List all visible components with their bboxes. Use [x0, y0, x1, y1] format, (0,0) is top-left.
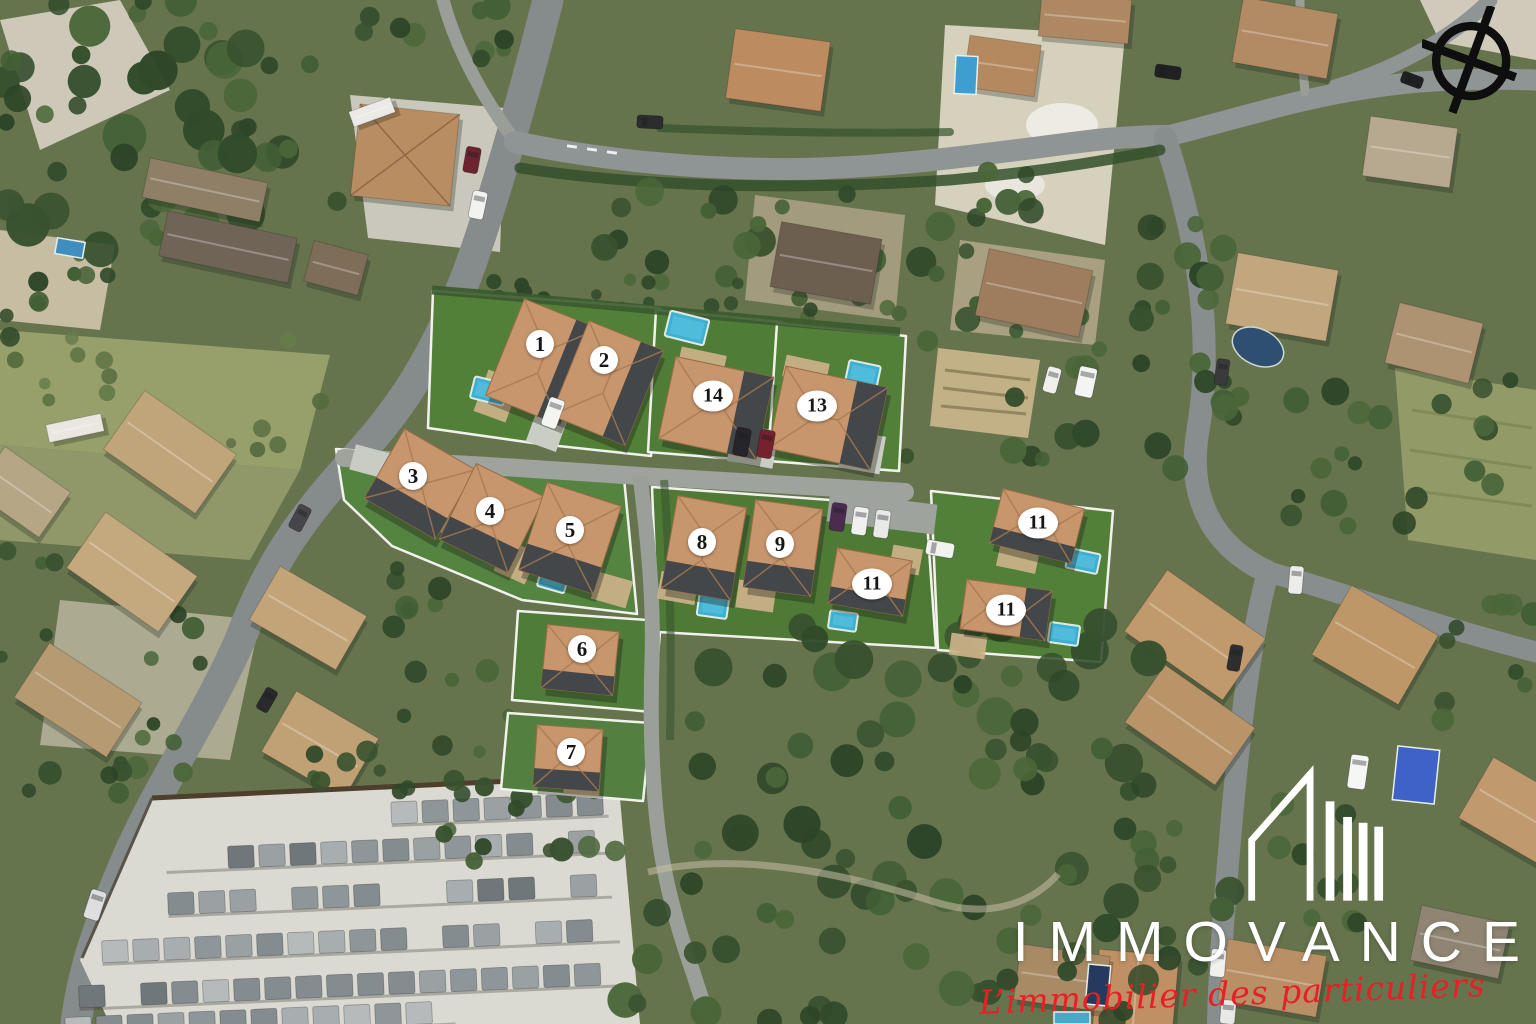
lot-marker-lot-3: 3 [399, 462, 427, 490]
logo-icon-wrap [979, 762, 1386, 908]
lot-marker-lot-9: 9 [766, 530, 794, 558]
brand-logo: IMMOVANCE L’immobilier des particuliers [979, 762, 1526, 1010]
aerial-map: 1214133458911111167 IMMOVANCE L’immobili… [0, 0, 1536, 1024]
lot-marker-lot-1: 1 [526, 330, 554, 358]
lot-marker-lot-7: 7 [557, 738, 585, 766]
lot-marker-lot-14: 14 [693, 381, 733, 412]
lot-marker-lot-13: 13 [797, 391, 837, 422]
lot-marker-lot-11-northeast: 11 [1018, 508, 1058, 539]
lot-marker-lot-11-west: 11 [852, 569, 892, 600]
lot-marker-lot-2: 2 [590, 346, 618, 374]
lot-marker-lot-5: 5 [556, 516, 584, 544]
lot-marker-lot-8: 8 [688, 528, 716, 556]
lot-marker-lot-11-southeast: 11 [986, 595, 1026, 626]
lot-marker-lot-4: 4 [476, 497, 504, 525]
brand-name: IMMOVANCE [979, 914, 1536, 971]
lot-marker-lot-6: 6 [568, 635, 596, 663]
compass-crosshair-icon [1422, 6, 1526, 118]
building-skyline-icon [1240, 762, 1386, 904]
